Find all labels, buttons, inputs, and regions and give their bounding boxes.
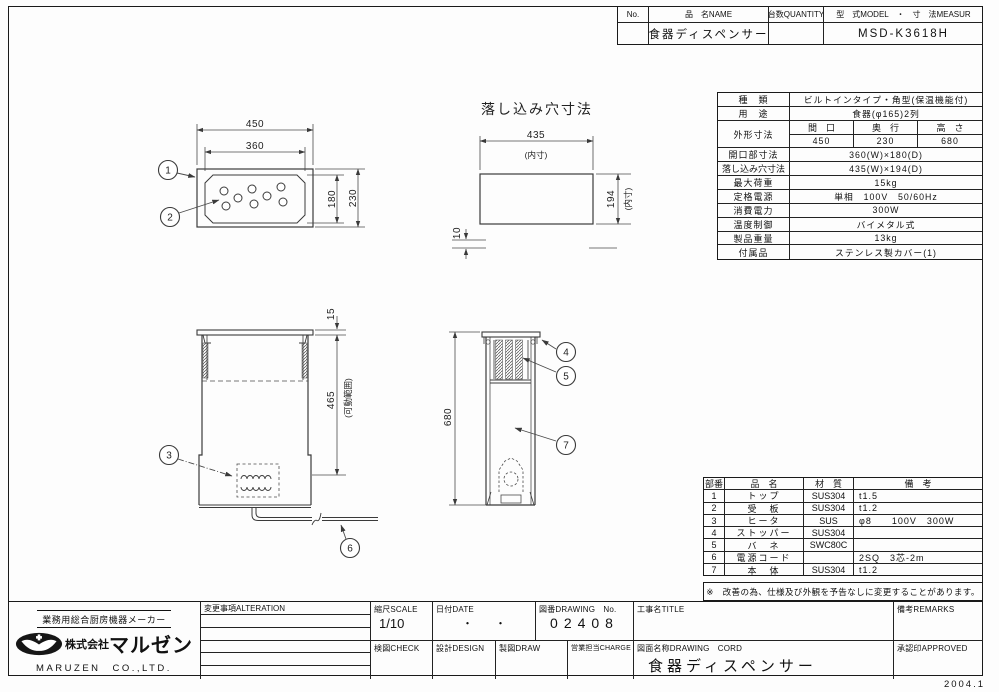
date-value: ・ ・ xyxy=(433,615,535,631)
drawing-no-value: 02408 xyxy=(536,615,633,631)
callout-1-number: 1 xyxy=(165,166,171,177)
spec-accessory-label: 付属品 xyxy=(718,245,790,259)
hole-view-title: 落し込み穴寸法 xyxy=(481,101,593,117)
spec-load-label: 最大荷重 xyxy=(718,176,790,190)
parts-no: 7 xyxy=(704,564,725,576)
drawing-sheet: 450 360 180 230 1 2 落し込み穴寸法 435 (内寸) xyxy=(0,0,999,692)
scale-label: 縮尺SCALE xyxy=(374,604,418,615)
model-number: MSD-K3618H xyxy=(824,23,983,44)
parts-material xyxy=(804,552,854,564)
parts-header-remarks: 備 考 xyxy=(854,478,982,490)
check-cell: 検図CHECK xyxy=(370,640,432,679)
title-header-table: No. 品 名NAME 台数QUANTITY 型 式MODEL ・ 寸 法MEA… xyxy=(617,6,983,45)
dim-180: 180 xyxy=(327,190,338,208)
dim-450: 450 xyxy=(246,119,264,130)
parts-material: SUS304 xyxy=(804,527,854,539)
approved-label: 承認印APPROVED xyxy=(897,643,968,654)
header-col-name: 品 名NAME xyxy=(649,6,769,23)
product-name: 食器ディスペンサー xyxy=(649,23,769,44)
parts-no: 5 xyxy=(704,539,725,551)
parts-material: SUS xyxy=(804,515,854,527)
parts-name: 受 板 xyxy=(725,503,804,515)
dim-435-note: (内寸) xyxy=(525,150,548,160)
dim-435: 435 xyxy=(527,130,545,141)
date-label: 日付DATE xyxy=(436,604,474,615)
header-col-no: No. xyxy=(618,6,649,23)
dish-holes xyxy=(220,183,287,210)
design-label: 設計DESIGN xyxy=(436,643,484,654)
remarks-label: 備考REMARKS xyxy=(897,604,954,615)
spec-outer-depth: 230 xyxy=(854,135,918,149)
company-brand: マルゼン xyxy=(109,629,193,658)
company-logo-row: 株式会社 マルゼン xyxy=(15,629,193,658)
maruzen-logo-icon xyxy=(15,632,63,656)
parts-header-no: 部番 xyxy=(704,478,725,490)
spec-kind-value: ビルトインタイプ・角型(保温機能付) xyxy=(790,93,982,107)
spec-watt-label: 消費電力 xyxy=(718,204,790,218)
spec-outer-label: 外形寸法 xyxy=(718,121,790,149)
issue-date: 2004.1 xyxy=(944,679,985,690)
charge-cell: 営業担当CHARGE xyxy=(567,640,633,679)
spec-weight-label: 製品重量 xyxy=(718,232,790,246)
dim-465-note: (可動範囲) xyxy=(343,378,353,418)
draw-cell: 製図DRAW xyxy=(495,640,567,679)
alteration-block: 変更事項ALTERATION xyxy=(200,602,370,679)
parts-material: SUS304 xyxy=(804,564,854,576)
bottom-mechanism-detail xyxy=(499,458,523,503)
parts-remarks xyxy=(854,527,982,539)
company-prefix: 株式会社 xyxy=(65,636,109,652)
date-cell: 日付DATE ・ ・ xyxy=(432,602,535,640)
spec-use-value: 食器(φ165)2列 xyxy=(790,107,982,121)
drawing-name-label: 図面名称DRAWING CORD xyxy=(637,643,742,654)
parts-material: SUS304 xyxy=(804,503,854,515)
spec-outer-col-depth: 奥 行 xyxy=(854,121,918,135)
alteration-row xyxy=(201,641,370,654)
parts-remarks: t1.5 xyxy=(854,490,982,502)
parts-no: 4 xyxy=(704,527,725,539)
alteration-label: 変更事項ALTERATION xyxy=(201,602,370,615)
dim-10: 10 xyxy=(452,227,463,239)
dim-680: 680 xyxy=(443,408,454,426)
spec-outer-col-width: 間 口 xyxy=(790,121,854,135)
parts-no: 2 xyxy=(704,503,725,515)
alteration-row xyxy=(201,615,370,628)
callout-5-number: 5 xyxy=(563,372,569,383)
dim-194: 194 xyxy=(606,190,617,208)
project-title-label: 工事名TITLE xyxy=(637,604,684,615)
spec-kind-label: 種 類 xyxy=(718,93,790,107)
spec-outer-col-height: 高 さ xyxy=(918,121,982,135)
side-view-drawing: 680 4 xyxy=(443,332,576,505)
spec-hole-label: 落し込み穴寸法 xyxy=(718,162,790,176)
spec-hole-value: 435(W)×194(D) xyxy=(790,162,982,176)
dim-230: 230 xyxy=(348,189,359,207)
header-val-no xyxy=(618,23,649,44)
parts-name: バ ネ xyxy=(725,539,804,551)
approved-cell: 承認印APPROVED xyxy=(893,640,983,679)
dim-15: 15 xyxy=(326,308,337,320)
parts-name: 本 体 xyxy=(725,564,804,576)
spec-temp-value: バイメタル式 xyxy=(790,218,982,232)
heater-detail-box xyxy=(237,464,279,497)
parts-remarks: t1.2 xyxy=(854,564,982,576)
scale-cell: 縮尺SCALE 1/10 xyxy=(370,602,432,640)
callout-4-number: 4 xyxy=(563,348,569,359)
spec-power-label: 定格電源 xyxy=(718,190,790,204)
remarks-cell: 備考REMARKS xyxy=(893,602,983,640)
drop-in-hole-drawing: 落し込み穴寸法 435 (内寸) 194 (内寸) 10 xyxy=(452,101,633,259)
drawing-name-cell: 図面名称DRAWING CORD 食器ディスペンサー xyxy=(633,640,893,679)
scale-value: 1/10 xyxy=(379,616,404,631)
company-name-en: MARUZEN CO.,LTD. xyxy=(36,660,172,674)
spec-outer-height: 680 xyxy=(918,135,982,149)
parts-remarks: 2SQ 3芯-2m xyxy=(854,552,982,564)
parts-remarks xyxy=(854,539,982,551)
parts-no: 3 xyxy=(704,515,725,527)
parts-material: SWC80C xyxy=(804,539,854,551)
callout-6-number: 6 xyxy=(347,544,353,555)
title-block: 業務用総合厨房機器メーカー 株式会社 マルゼン MARUZEN CO.,LTD.… xyxy=(8,601,983,678)
dim-360: 360 xyxy=(246,141,264,152)
header-col-model: 型 式MODEL ・ 寸 法MEASUR xyxy=(824,6,983,23)
parts-no: 1 xyxy=(704,490,725,502)
parts-header-name: 品 名 xyxy=(725,478,804,490)
dim-194-note: (内寸) xyxy=(623,188,633,211)
charge-label: 営業担当CHARGE xyxy=(571,643,631,653)
power-cord xyxy=(252,508,378,526)
spec-weight-value: 13kg xyxy=(790,232,982,246)
callout-7-number: 7 xyxy=(563,441,569,452)
draw-label: 製図DRAW xyxy=(499,643,540,654)
company-block: 業務用総合厨房機器メーカー 株式会社 マルゼン MARUZEN CO.,LTD. xyxy=(8,602,200,679)
spec-power-value: 単相 100V 50/60Hz xyxy=(790,190,982,204)
parts-name: トップ xyxy=(725,490,804,502)
parts-header-material: 材 質 xyxy=(804,478,854,490)
front-view-drawing: 15 465 (可動範囲) 3 6 xyxy=(160,308,379,558)
design-cell: 設計DESIGN xyxy=(432,640,495,679)
spec-temp-label: 温度制御 xyxy=(718,218,790,232)
callout-3-number: 3 xyxy=(166,451,172,462)
parts-name: ヒータ xyxy=(725,515,804,527)
project-title-cell: 工事名TITLE xyxy=(633,602,893,640)
parts-name: ストッパー xyxy=(725,527,804,539)
callout-2-number: 2 xyxy=(167,213,173,224)
parts-list-table: 部番 品 名 材 質 備 考 1 トップ SUS304 t1.5 2 受 板 S… xyxy=(703,477,983,576)
alteration-row xyxy=(201,653,370,666)
parts-remarks: t1.2 xyxy=(854,503,982,515)
company-tagline: 業務用総合厨房機器メーカー xyxy=(37,610,171,628)
spec-accessory-value: ステンレス製カバー(1) xyxy=(790,245,982,259)
spec-use-label: 用 途 xyxy=(718,107,790,121)
top-view-drawing: 450 360 180 230 1 2 xyxy=(159,119,366,227)
alteration-row xyxy=(201,666,370,679)
header-col-qty: 台数QUANTITY xyxy=(769,6,824,23)
spec-outer-width: 450 xyxy=(790,135,854,149)
disclaimer-note: ※ 改善の為、仕様及び外観を予告なしに変更することがあります。 xyxy=(703,582,983,601)
spec-opening-value: 360(W)×180(D) xyxy=(790,148,982,162)
drawing-name-value: 食器ディスペンサー xyxy=(648,655,817,676)
drawing-no-label: 図番DRAWING No. xyxy=(539,604,616,615)
alteration-row xyxy=(201,628,370,641)
parts-name: 電源コード xyxy=(725,552,804,564)
header-val-qty xyxy=(769,23,824,44)
dim-465: 465 xyxy=(326,391,337,409)
check-label: 検図CHECK xyxy=(374,643,419,654)
drawing-no-cell: 図番DRAWING No. 02408 xyxy=(535,602,633,640)
spec-load-value: 15kg xyxy=(790,176,982,190)
spec-watt-value: 300W xyxy=(790,204,982,218)
parts-no: 6 xyxy=(704,552,725,564)
parts-material: SUS304 xyxy=(804,490,854,502)
spring-stack xyxy=(490,340,531,383)
specification-table: 種 類 ビルトインタイプ・角型(保温機能付) 用 途 食器(φ165)2列 外形… xyxy=(717,92,983,260)
parts-remarks: φ8 100V 300W xyxy=(854,515,982,527)
spec-opening-label: 開口部寸法 xyxy=(718,148,790,162)
